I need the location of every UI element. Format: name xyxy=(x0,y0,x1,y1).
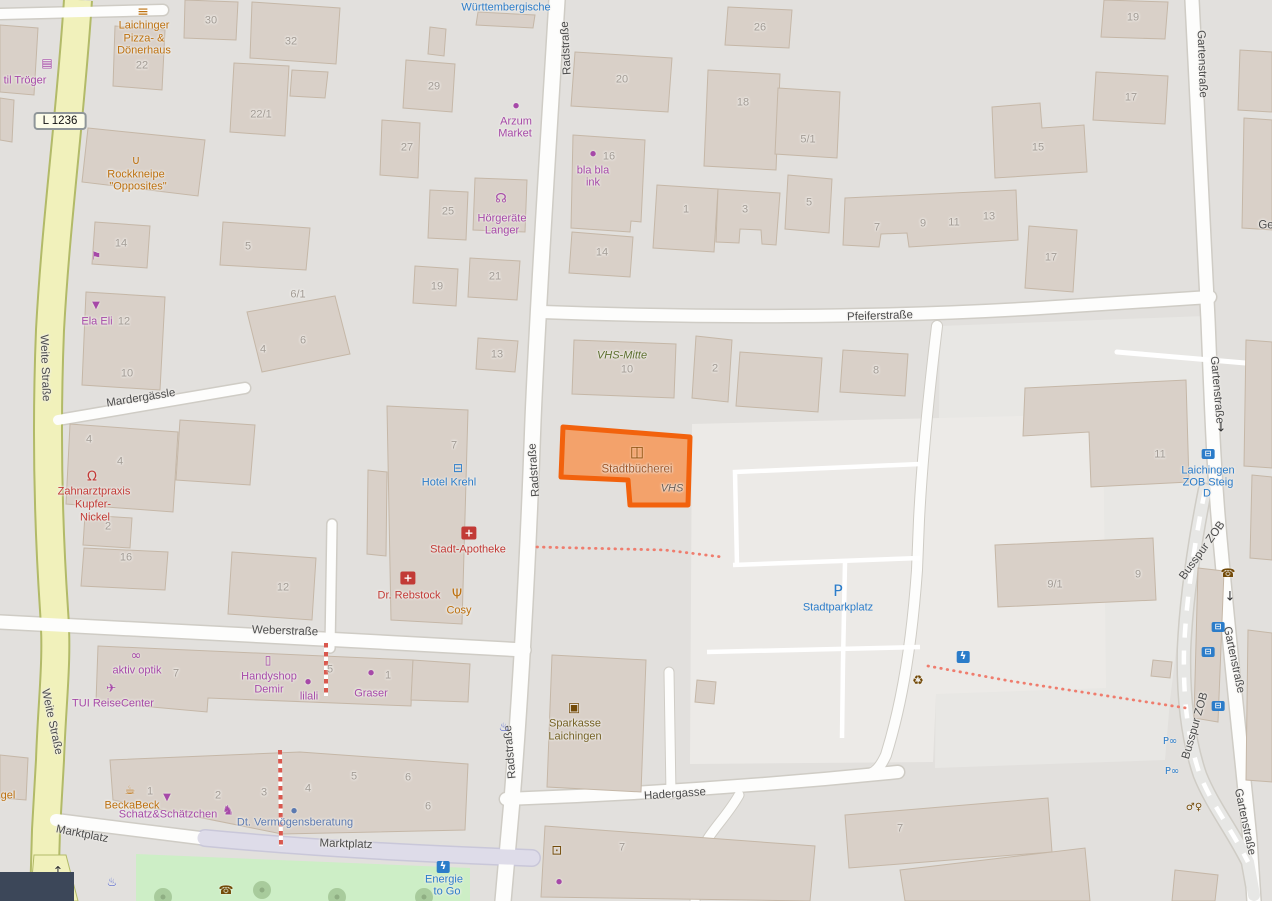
map-canvas[interactable]: RadstraßeRadstraßeRadstraßePfeiferstraße… xyxy=(0,0,1272,901)
stadtbuecherei-highlighted-building[interactable] xyxy=(561,427,690,505)
road-shield-l1236: L 1236 xyxy=(34,112,87,130)
bottom-left-dark-panel xyxy=(0,872,74,901)
map-graphics xyxy=(0,0,1272,901)
